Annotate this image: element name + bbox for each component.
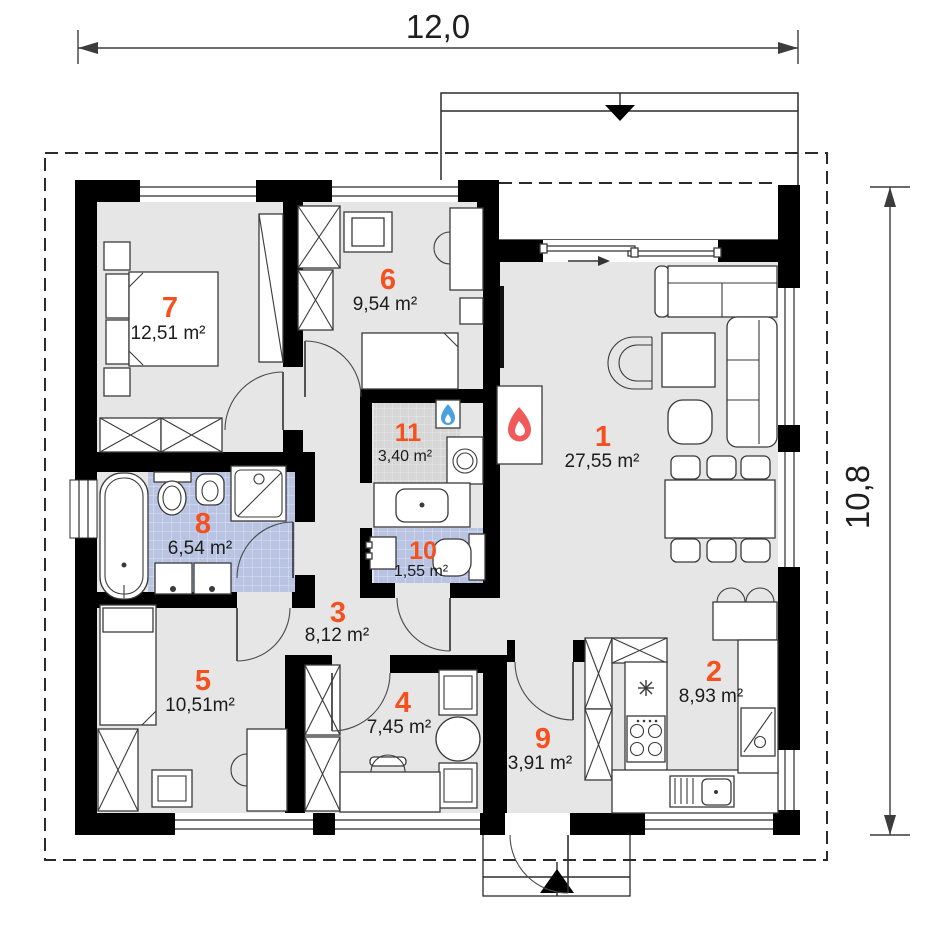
dining-table (665, 480, 775, 538)
single-bed (362, 333, 458, 389)
room-1-area: 27,55 m² (565, 451, 640, 472)
pillow (106, 320, 129, 364)
room-4-area: 7,45 m² (367, 717, 431, 738)
room-11-number: 11 (395, 419, 422, 447)
room-7-number: 7 (162, 292, 178, 324)
bidet (196, 474, 224, 505)
room-4-number: 4 (395, 687, 411, 719)
room-9-number: 9 (535, 723, 551, 755)
nightstand (104, 242, 130, 270)
room-11-area: 3,40 m² (378, 448, 433, 465)
room-10-area: 1,55 m² (394, 563, 449, 580)
window-dining-right (778, 452, 800, 567)
dimension-right: 10,8 (839, 187, 910, 835)
dining-chair (707, 456, 736, 479)
room-3-area: 8,12 m² (305, 625, 369, 646)
pillow (103, 608, 153, 632)
room-7-area: 12,51 m² (131, 323, 206, 344)
dimension-height-label: 10,8 (839, 465, 876, 529)
room-5-number: 5 (195, 665, 211, 697)
hand-basin (370, 537, 396, 569)
room-9-area: 3,91 m² (508, 753, 572, 774)
window-room4 (335, 813, 480, 835)
coffee-table (662, 333, 715, 387)
room-1-number: 1 (595, 421, 611, 453)
room-6-number: 6 (380, 264, 396, 296)
desk (247, 729, 287, 811)
window-kitchen-bottom (645, 813, 773, 835)
room-10-number: 10 (409, 537, 437, 565)
desk (340, 772, 440, 812)
pillow (106, 274, 129, 318)
floorplan-drawing: 12,0 10,8 1 27,55 m² 2 8,93 m² 3 8,12 m²… (0, 0, 944, 928)
room-2-area: 8,93 m² (679, 686, 743, 707)
room-2-number: 2 (706, 656, 722, 688)
sofa-side (727, 317, 777, 447)
entry-door-opening (505, 813, 570, 835)
tv (500, 286, 504, 368)
chair (439, 670, 477, 715)
window-room7 (140, 180, 256, 202)
fridge-star-icon (638, 680, 654, 696)
dimension-width-label: 12,0 (406, 8, 470, 45)
sofa-armrest (655, 266, 669, 317)
chair (439, 763, 477, 808)
dining-chair (707, 539, 736, 562)
dining-chair (671, 539, 700, 562)
dining-chair (741, 539, 770, 562)
dining-chair (741, 456, 770, 479)
floorplan: 12,0 10,8 1 27,55 m² 2 8,93 m² 3 8,12 m²… (0, 0, 944, 928)
dimension-top: 12,0 (78, 8, 798, 64)
room-8-area: 6,54 m² (168, 538, 232, 559)
round-table (436, 717, 480, 761)
desk-chair-back (370, 757, 406, 766)
window-kitchen-right (778, 750, 800, 810)
stove (627, 716, 665, 762)
bar-counter (713, 602, 777, 640)
nightstand (460, 298, 483, 324)
nightstand (104, 368, 130, 396)
pouf (668, 400, 712, 444)
dining-chair (671, 456, 700, 479)
window-room6 (332, 180, 458, 202)
washing-machine (447, 437, 483, 484)
bathtub (100, 473, 148, 599)
room-8-number: 8 (195, 508, 211, 540)
room-5-area: 10,51m² (165, 695, 235, 716)
desk (450, 208, 483, 290)
window-room5 (175, 813, 313, 835)
room-6-area: 9,54 m² (353, 294, 417, 315)
window-bathroom (70, 480, 97, 538)
window-living-right (778, 288, 800, 425)
